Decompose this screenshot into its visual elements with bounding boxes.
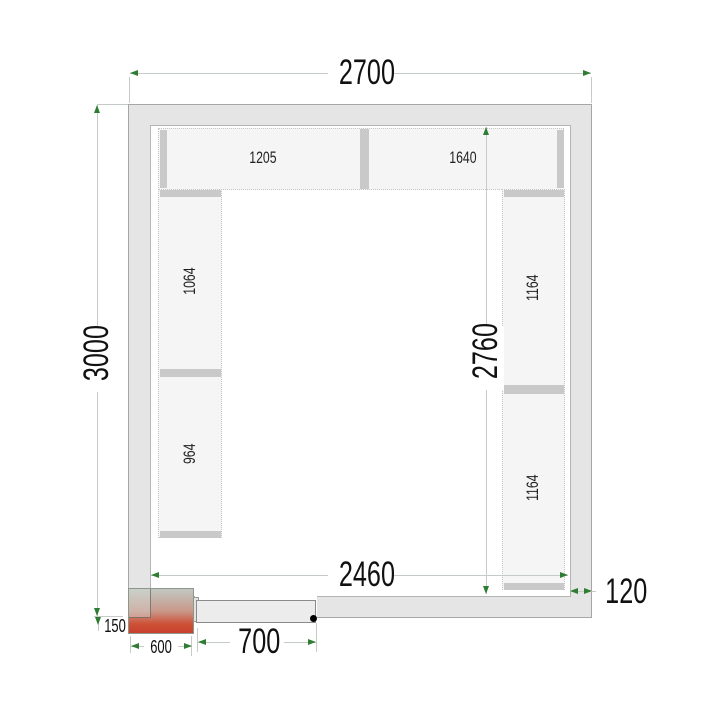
shelf-label-left-lower: 964	[181, 424, 199, 484]
shelf-label-right-lower: 1164	[524, 458, 542, 518]
dim-arrow-right-icon	[560, 572, 568, 578]
shelf-post	[504, 385, 564, 394]
dim-label-inner-height: 2760	[468, 326, 504, 390]
wall-bottom-through-unit	[129, 617, 150, 618]
dim-label-outer-height: 3000	[79, 328, 115, 392]
dim-arrow-up-icon	[483, 127, 489, 135]
shelf-label-left-upper: 1064	[181, 251, 199, 311]
wall-edge-through-unit	[150, 589, 151, 618]
shelf-label-top-left: 1205	[233, 149, 293, 167]
dim-label-unit-width: 600	[144, 638, 178, 656]
dim-arrow-left-icon	[151, 572, 159, 578]
dim-arrow-left-icon	[198, 639, 206, 645]
dim-arrow-down-icon	[483, 586, 489, 594]
dim-arrow-right-icon	[308, 639, 316, 645]
shelf-post	[360, 129, 369, 189]
dim-extension-line	[591, 77, 592, 103]
shelf-post	[504, 583, 564, 590]
dim-extension-line	[316, 623, 317, 652]
shelf-post	[160, 190, 221, 197]
dim-extension-line	[97, 104, 128, 105]
dim-arrow-right-icon	[583, 70, 591, 76]
shelf-post	[504, 190, 564, 197]
shelf-post	[160, 369, 221, 377]
dim-arrow-down-icon	[94, 608, 100, 616]
dim-arrow-up-icon	[94, 105, 100, 113]
shelf-right	[502, 189, 565, 590]
dim-label-door-width: 700	[230, 624, 284, 660]
dim-label-inner-width: 2460	[328, 557, 392, 593]
door-hinge-dot	[310, 615, 317, 622]
dim-arrow-right-icon	[584, 588, 592, 594]
shelf-post	[160, 531, 221, 538]
dim-arrow-left-icon	[570, 588, 578, 594]
dim-label-wall-thickness: 120	[597, 574, 657, 610]
dim-arrow-right-icon	[184, 643, 192, 649]
shelf-label-top-right: 1640	[433, 149, 493, 167]
dim-label-unit-offset: 150	[100, 617, 130, 635]
shelf-post	[557, 130, 564, 188]
dim-arrow-left-icon	[131, 643, 139, 649]
shelf-post	[160, 130, 167, 188]
dim-extension-line	[129, 77, 130, 103]
wall-overlap-tint	[129, 589, 150, 617]
shelf-left	[158, 189, 222, 538]
shelf-label-right-upper: 1164	[524, 258, 542, 318]
door-leaf	[196, 600, 316, 623]
dim-label-outer-width: 2700	[328, 55, 392, 91]
shelf-top	[158, 128, 564, 190]
floor-plan: 1205 1640 1064 964 1164 1164 2700 3000 2…	[0, 0, 720, 720]
dim-arrow-left-icon	[130, 70, 138, 76]
